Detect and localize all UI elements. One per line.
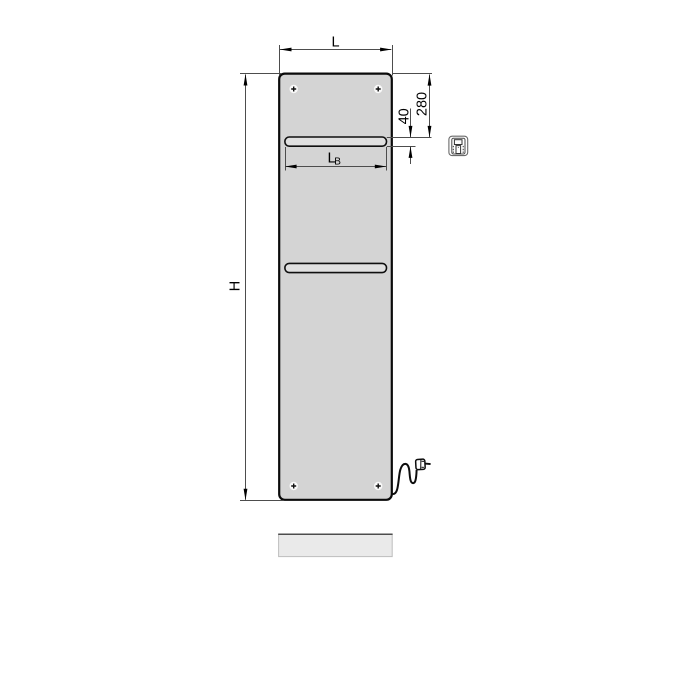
svg-text:B: B	[334, 156, 341, 167]
svg-text:L: L	[331, 35, 339, 51]
svg-text:H: H	[227, 281, 243, 291]
svg-text:40: 40	[396, 108, 412, 124]
svg-text:280: 280	[414, 92, 430, 116]
